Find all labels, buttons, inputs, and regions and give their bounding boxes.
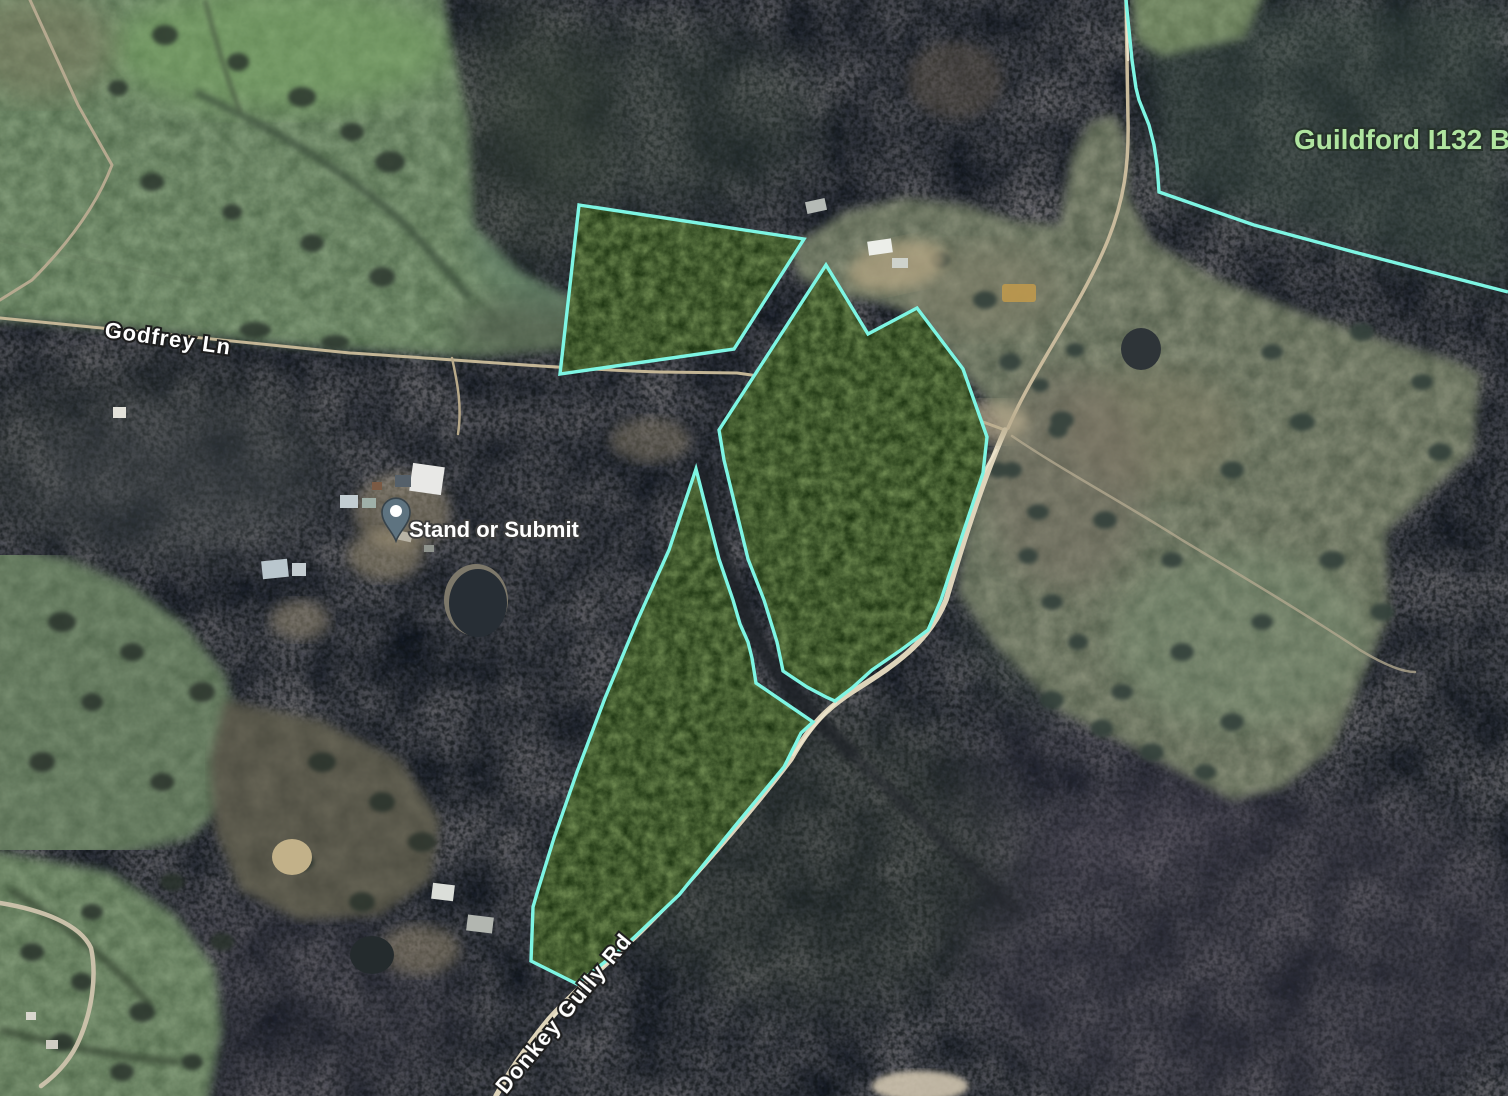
svg-text:Guildford I132 B: Guildford I132 B: [1294, 124, 1508, 155]
svg-text:Stand or Submit: Stand or Submit: [409, 517, 580, 542]
